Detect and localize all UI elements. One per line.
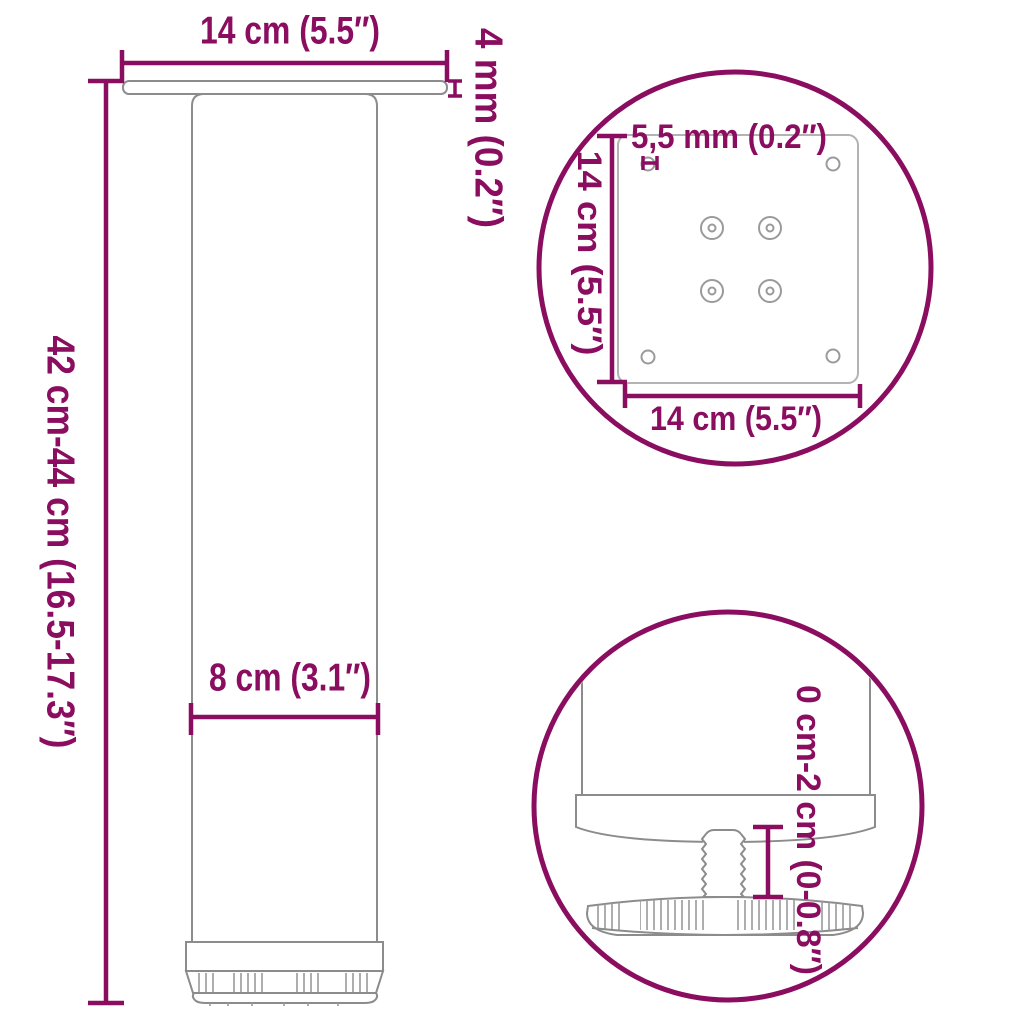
plate-thickness-marker — [448, 81, 462, 96]
corner-hole — [642, 351, 655, 364]
corner-hole — [827, 350, 840, 363]
foot-collar — [186, 942, 383, 971]
adjustment-range-label: 0 cm-2 cm (0-0.8″) — [789, 685, 827, 975]
top-width-dimension — [122, 50, 447, 82]
foot-detail-view: 0 cm-2 cm (0-0.8″) — [534, 612, 922, 1000]
plate-height-label: 14 cm (5.5″) — [570, 151, 608, 356]
height-range-label: 42 cm-44 cm (16.5-17.3″) — [39, 336, 82, 749]
screw-hole — [701, 280, 723, 302]
plate-detail-view: 5,5 mm (0.2″) 14 cm (5.5″) 14 cm (5.5″) — [539, 72, 931, 464]
leg-column — [192, 94, 377, 942]
screw-hole — [701, 217, 723, 239]
threaded-stem — [702, 830, 745, 897]
mounting-plate-side — [123, 81, 447, 94]
height-dimension — [88, 81, 124, 1003]
screw-hole — [759, 280, 781, 302]
main-view: 14 cm (5.5″) 4 mm (0.2″) 42 cm-44 cm (16… — [39, 10, 510, 1007]
top-width-label: 14 cm (5.5″) — [200, 10, 380, 53]
foot-base-rim — [193, 993, 377, 1003]
corner-hole — [827, 158, 840, 171]
product-dimension-diagram: 14 cm (5.5″) 4 mm (0.2″) 42 cm-44 cm (16… — [0, 0, 1024, 1024]
screw-hole — [759, 217, 781, 239]
mounting-plate-top — [618, 135, 858, 383]
hole-diameter-label: 5,5 mm (0.2″) — [631, 118, 827, 156]
leg-diameter-label: 8 cm (3.1″) — [209, 657, 371, 700]
plate-width-label: 14 cm (5.5″) — [650, 400, 822, 438]
diagram-canvas: 14 cm (5.5″) 4 mm (0.2″) 42 cm-44 cm (16… — [0, 0, 1024, 1024]
plate-thickness-label: 4 mm (0.2″) — [467, 28, 510, 228]
